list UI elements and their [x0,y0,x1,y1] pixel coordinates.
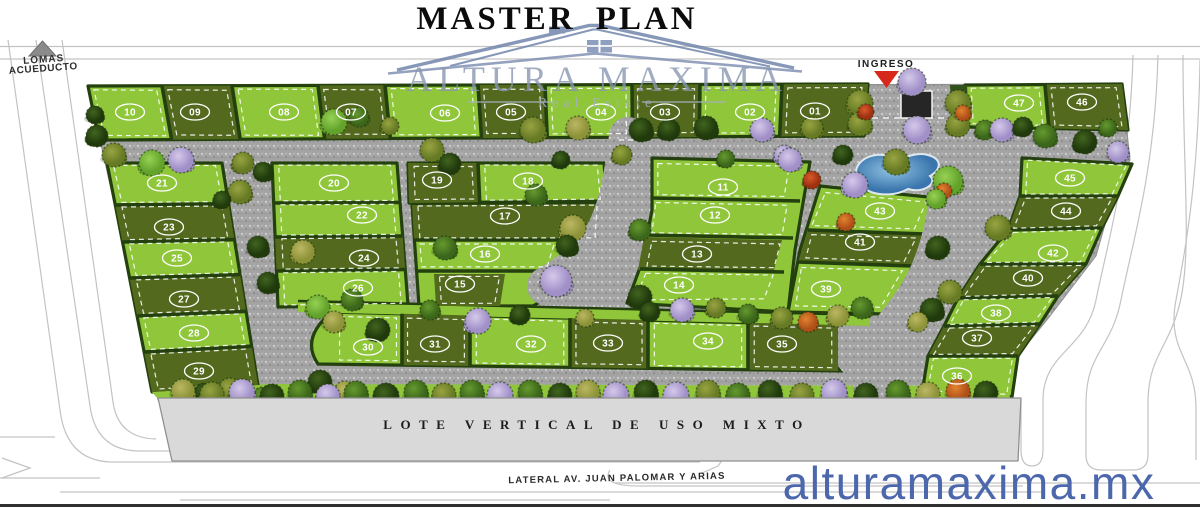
svg-text:46: 46 [1076,98,1088,109]
svg-text:23: 23 [163,223,175,234]
svg-text:06: 06 [439,109,451,120]
svg-text:Real Estate: Real Estate [538,96,656,111]
svg-text:24: 24 [358,254,370,265]
svg-text:33: 33 [602,339,614,350]
svg-text:12: 12 [709,211,721,222]
svg-text:27: 27 [178,295,190,306]
svg-text:28: 28 [188,329,200,340]
svg-text:42: 42 [1047,249,1059,260]
svg-text:03: 03 [659,108,671,119]
svg-text:31: 31 [429,340,441,351]
svg-text:14: 14 [673,281,685,292]
svg-text:15: 15 [454,280,466,291]
svg-text:25: 25 [171,254,183,265]
svg-text:40: 40 [1022,274,1034,285]
svg-text:05: 05 [505,108,517,119]
svg-text:38: 38 [990,309,1002,320]
svg-text:18: 18 [522,177,534,188]
svg-text:45: 45 [1064,174,1076,185]
svg-text:LOTE VERTICAL DE USO MIXTO: LOTE VERTICAL DE USO MIXTO [383,417,810,432]
svg-text:36: 36 [951,372,963,383]
svg-text:44: 44 [1060,207,1072,218]
svg-text:08: 08 [278,108,290,119]
svg-text:07: 07 [345,108,357,119]
svg-text:INGRESO: INGRESO [858,59,915,70]
svg-text:37: 37 [971,334,983,345]
svg-text:09: 09 [189,108,201,119]
svg-text:19: 19 [431,176,443,187]
svg-text:alturamaxima.mx: alturamaxima.mx [783,457,1156,507]
svg-text:39: 39 [820,285,832,296]
svg-text:35: 35 [776,340,788,351]
svg-text:21: 21 [156,179,168,190]
svg-text:43: 43 [874,207,886,218]
svg-text:26: 26 [352,284,364,295]
svg-text:30: 30 [362,343,374,354]
svg-text:13: 13 [691,250,703,261]
svg-text:01: 01 [809,107,821,118]
svg-text:10: 10 [124,108,136,119]
svg-text:34: 34 [702,337,714,348]
svg-text:29: 29 [193,367,205,378]
svg-text:MASTER PLAN: MASTER PLAN [416,1,697,37]
svg-text:ALTURA MAXIMA: ALTURA MAXIMA [406,59,788,99]
svg-text:20: 20 [328,179,340,190]
svg-text:02: 02 [744,108,756,119]
svg-text:11: 11 [717,183,728,194]
svg-text:47: 47 [1013,99,1025,110]
svg-text:32: 32 [525,340,537,351]
svg-text:22: 22 [356,211,368,222]
svg-text:16: 16 [479,250,491,261]
svg-text:41: 41 [854,238,866,249]
svg-text:17: 17 [499,212,511,223]
